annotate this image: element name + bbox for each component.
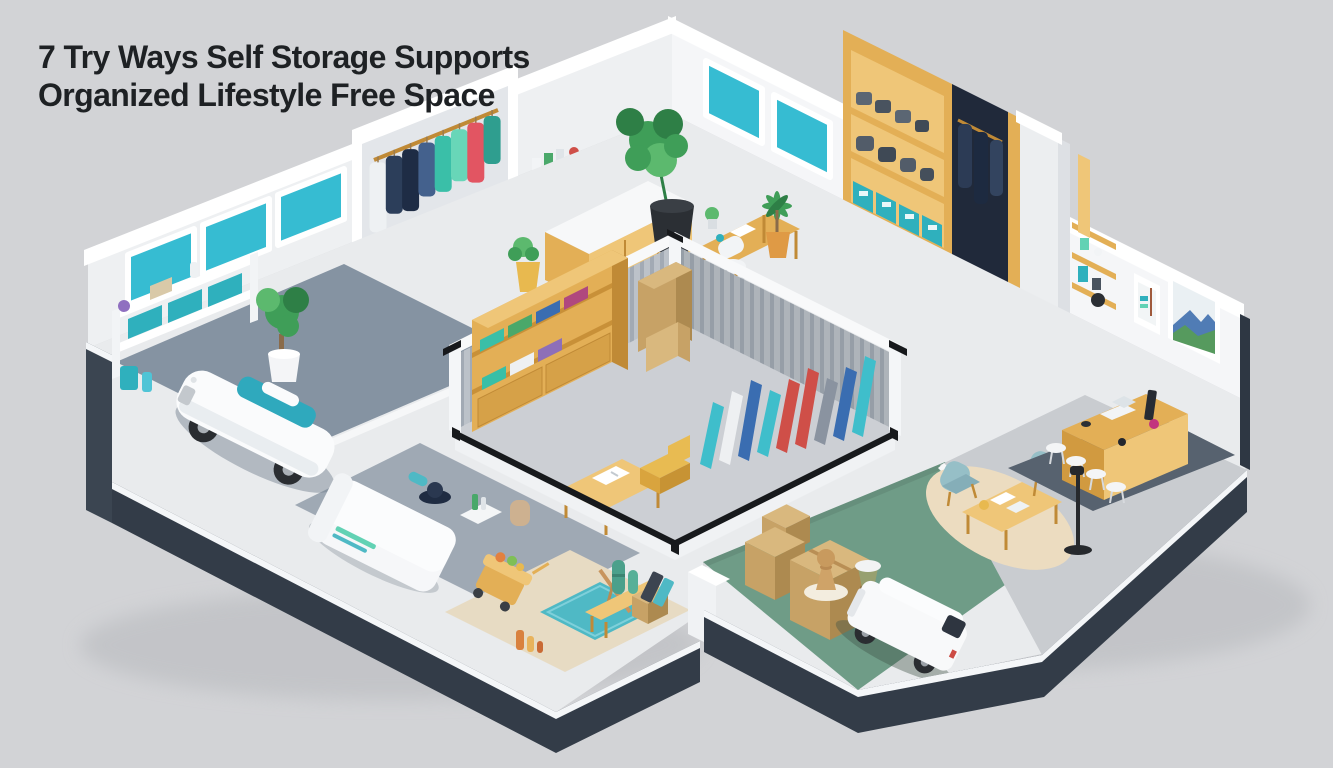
wardrobe-side-panel (1008, 112, 1020, 294)
purple-item (118, 300, 130, 312)
garment (402, 149, 419, 211)
garment (467, 123, 484, 183)
desk-cup (716, 234, 724, 242)
illustration-canvas: 7 Try Ways Self Storage Supports Organiz… (0, 0, 1333, 768)
teal-bucket (120, 366, 138, 390)
spray-bottle (190, 262, 198, 278)
left-wall-cap (86, 342, 112, 523)
cup (979, 500, 989, 510)
garment (451, 129, 468, 181)
unit-corner-post (889, 345, 901, 436)
title-line-1: 7 Try Ways Self Storage Supports (38, 39, 530, 75)
garment (386, 156, 403, 214)
cyan-bottle (142, 372, 152, 392)
right-wall-edge (1240, 314, 1250, 470)
tan-bag (510, 500, 530, 526)
magenta-item (1149, 419, 1159, 429)
garment (435, 136, 452, 192)
garment (484, 116, 501, 164)
garment (418, 142, 435, 196)
unit-boxes (638, 262, 692, 372)
wood-plank (1078, 154, 1090, 238)
stepped-wall-block (1016, 110, 1070, 319)
teardrop-vase (1091, 293, 1105, 307)
desk-plant (705, 207, 719, 221)
title-line-2: Organized Lifestyle Free Space (38, 77, 495, 113)
unit-corner-post (449, 345, 461, 436)
mouse (1081, 421, 1091, 427)
garment (370, 162, 387, 232)
